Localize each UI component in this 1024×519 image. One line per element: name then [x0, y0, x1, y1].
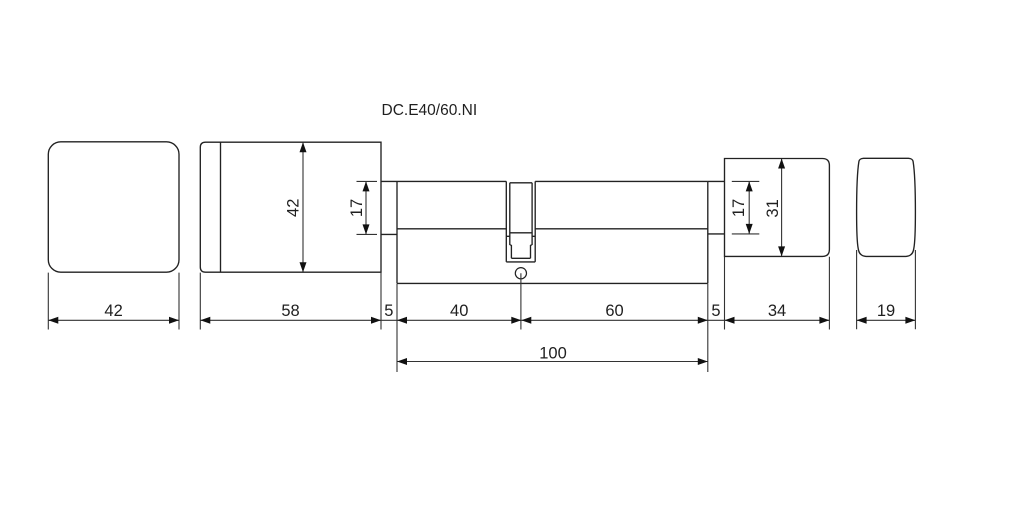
- svg-text:58: 58: [281, 302, 299, 320]
- svg-text:40: 40: [450, 302, 468, 320]
- svg-text:42: 42: [285, 199, 303, 217]
- svg-text:42: 42: [104, 302, 122, 320]
- svg-text:17: 17: [730, 199, 748, 217]
- svg-text:100: 100: [539, 345, 567, 363]
- svg-text:19: 19: [877, 302, 895, 320]
- svg-text:5: 5: [384, 302, 393, 320]
- svg-text:60: 60: [605, 302, 623, 320]
- svg-text:5: 5: [711, 302, 720, 320]
- svg-text:31: 31: [764, 199, 782, 217]
- svg-text:17: 17: [348, 199, 366, 217]
- svg-text:DC.E40/60.NI: DC.E40/60.NI: [382, 102, 478, 119]
- svg-text:34: 34: [768, 302, 786, 320]
